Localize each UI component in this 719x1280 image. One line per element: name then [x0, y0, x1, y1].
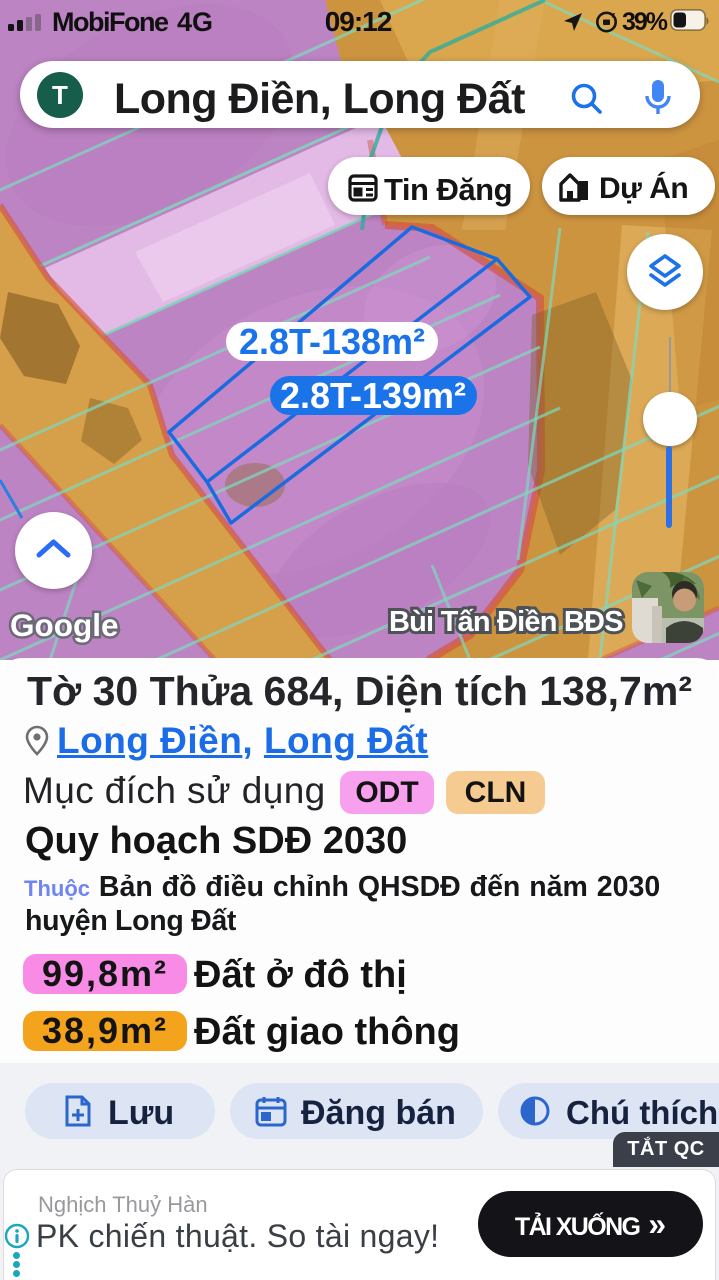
svg-text:2.8T-138m²: 2.8T-138m²: [239, 321, 425, 362]
svg-text:2.8T-139m²: 2.8T-139m²: [280, 375, 466, 416]
